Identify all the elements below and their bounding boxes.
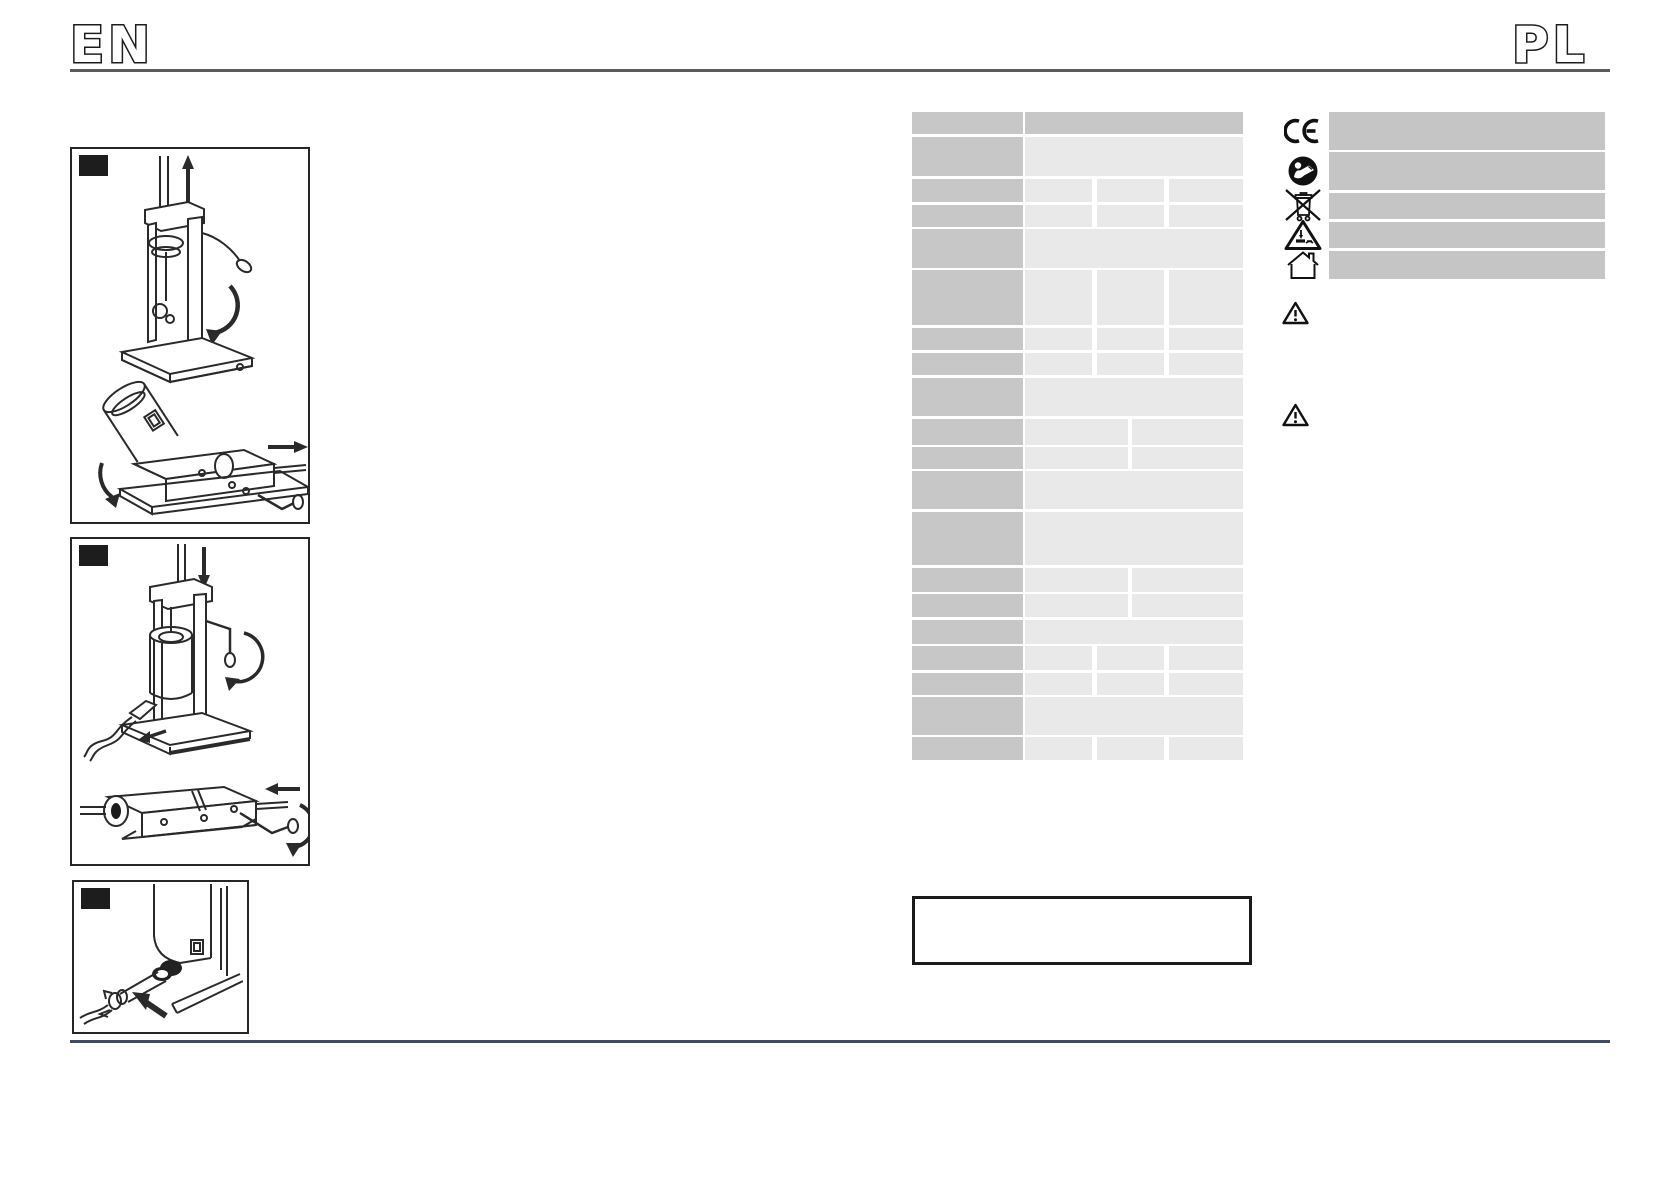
spec-value-cell: [1025, 737, 1092, 760]
footer-rule: [70, 1040, 1610, 1043]
spec-value-cell: [1132, 594, 1243, 617]
spec-value-cell: [1025, 620, 1243, 644]
spec-value-cell: [1097, 328, 1164, 350]
figure-3-label-square: [81, 888, 110, 909]
spec-row-label: [912, 512, 1023, 565]
spec-row-label: [912, 137, 1023, 176]
spec-row-label: [912, 229, 1023, 268]
spec-row-label: [912, 673, 1023, 695]
symbol-description-bar: [1329, 112, 1605, 150]
spec-value-cell: [1097, 673, 1164, 695]
lang-left-logo: EN: [66, 14, 206, 72]
spec-row-label: [912, 179, 1023, 202]
spec-value-cell: [1025, 205, 1092, 227]
spec-row-label: [912, 378, 1023, 416]
spec-value-cell: [1025, 378, 1243, 416]
stuffer-operation-diagram: [72, 539, 308, 864]
spec-value-cell: [1097, 737, 1164, 760]
symbol-description-bar: [1329, 222, 1605, 248]
vertical-stuffer-diagram: [72, 149, 308, 522]
header-rule: [70, 69, 1610, 72]
spec-row-label: [912, 697, 1023, 735]
spec-value-cell: [1097, 353, 1164, 375]
figure-box-1: [70, 147, 310, 524]
spec-row-label: [912, 620, 1023, 644]
spec-value-cell: [1025, 353, 1092, 375]
spec-value-cell: [1097, 205, 1164, 227]
spec-header-cell: [1025, 112, 1243, 134]
figure-box-2: [70, 537, 310, 866]
figure-1-label-square: [79, 155, 108, 176]
spec-value-cell: [1169, 270, 1243, 325]
lang-right-text: PL: [1512, 16, 1589, 72]
spec-value-cell: [1025, 673, 1092, 695]
spec-value-cell: [1025, 646, 1092, 670]
spec-value-cell: [1025, 447, 1128, 469]
read-manual-icon: [1284, 154, 1322, 188]
spec-row-label: [912, 328, 1023, 350]
note-box: [912, 896, 1252, 965]
spec-value-cell: [1132, 447, 1243, 469]
spec-value-cell: [1169, 328, 1243, 350]
spec-value-cell: [1169, 737, 1243, 760]
spec-value-cell: [1169, 646, 1243, 670]
spec-value-cell: [1169, 179, 1243, 202]
spec-row-label: [912, 205, 1023, 227]
spec-value-cell: [1025, 137, 1243, 176]
spec-row-label: [912, 447, 1023, 469]
spec-value-cell: [1169, 673, 1243, 695]
spec-row-label: [912, 471, 1023, 509]
spec-value-cell: [1097, 646, 1164, 670]
spec-value-cell: [1025, 697, 1243, 735]
spec-value-cell: [1025, 512, 1243, 565]
spec-value-cell: [1025, 419, 1128, 445]
spec-row-label: [912, 568, 1023, 592]
spec-row-label: [912, 112, 1023, 134]
warning-triangle-icon: [1276, 296, 1314, 330]
spec-value-cell: [1025, 471, 1243, 509]
symbol-description-bar: [1329, 193, 1605, 219]
spec-value-cell: [1025, 594, 1128, 617]
spec-value-cell: [1025, 328, 1092, 350]
spec-value-cell: [1169, 205, 1243, 227]
spec-value-cell: [1025, 568, 1128, 592]
figure-2-label-square: [79, 545, 108, 566]
spec-row-label: [912, 270, 1023, 325]
spec-row-label: [912, 353, 1023, 375]
hand-crush-warning-icon: [1284, 218, 1322, 252]
spec-row-label: [912, 419, 1023, 445]
warning-triangle-icon: [1276, 398, 1314, 432]
spec-value-cell: [1025, 229, 1243, 268]
spec-value-cell: [1132, 568, 1243, 592]
symbol-description-bar: [1329, 251, 1605, 279]
spec-value-cell: [1025, 179, 1092, 202]
spec-value-cell: [1097, 179, 1164, 202]
spec-value-cell: [1097, 270, 1164, 325]
indoor-use-house-icon: [1284, 248, 1322, 282]
spec-row-label: [912, 646, 1023, 670]
spec-row-label: [912, 737, 1023, 760]
figure-box-3: [72, 880, 249, 1034]
spec-value-cell: [1169, 353, 1243, 375]
spec-row-label: [912, 594, 1023, 617]
lang-left-text: EN: [70, 16, 154, 72]
spec-value-cell: [1025, 270, 1092, 325]
ce-mark-icon: [1284, 114, 1322, 148]
symbol-description-bar: [1329, 152, 1605, 190]
lang-right-logo: PL: [1508, 14, 1618, 72]
spec-value-cell: [1132, 419, 1243, 445]
manual-page: EN PL: [0, 0, 1678, 1191]
